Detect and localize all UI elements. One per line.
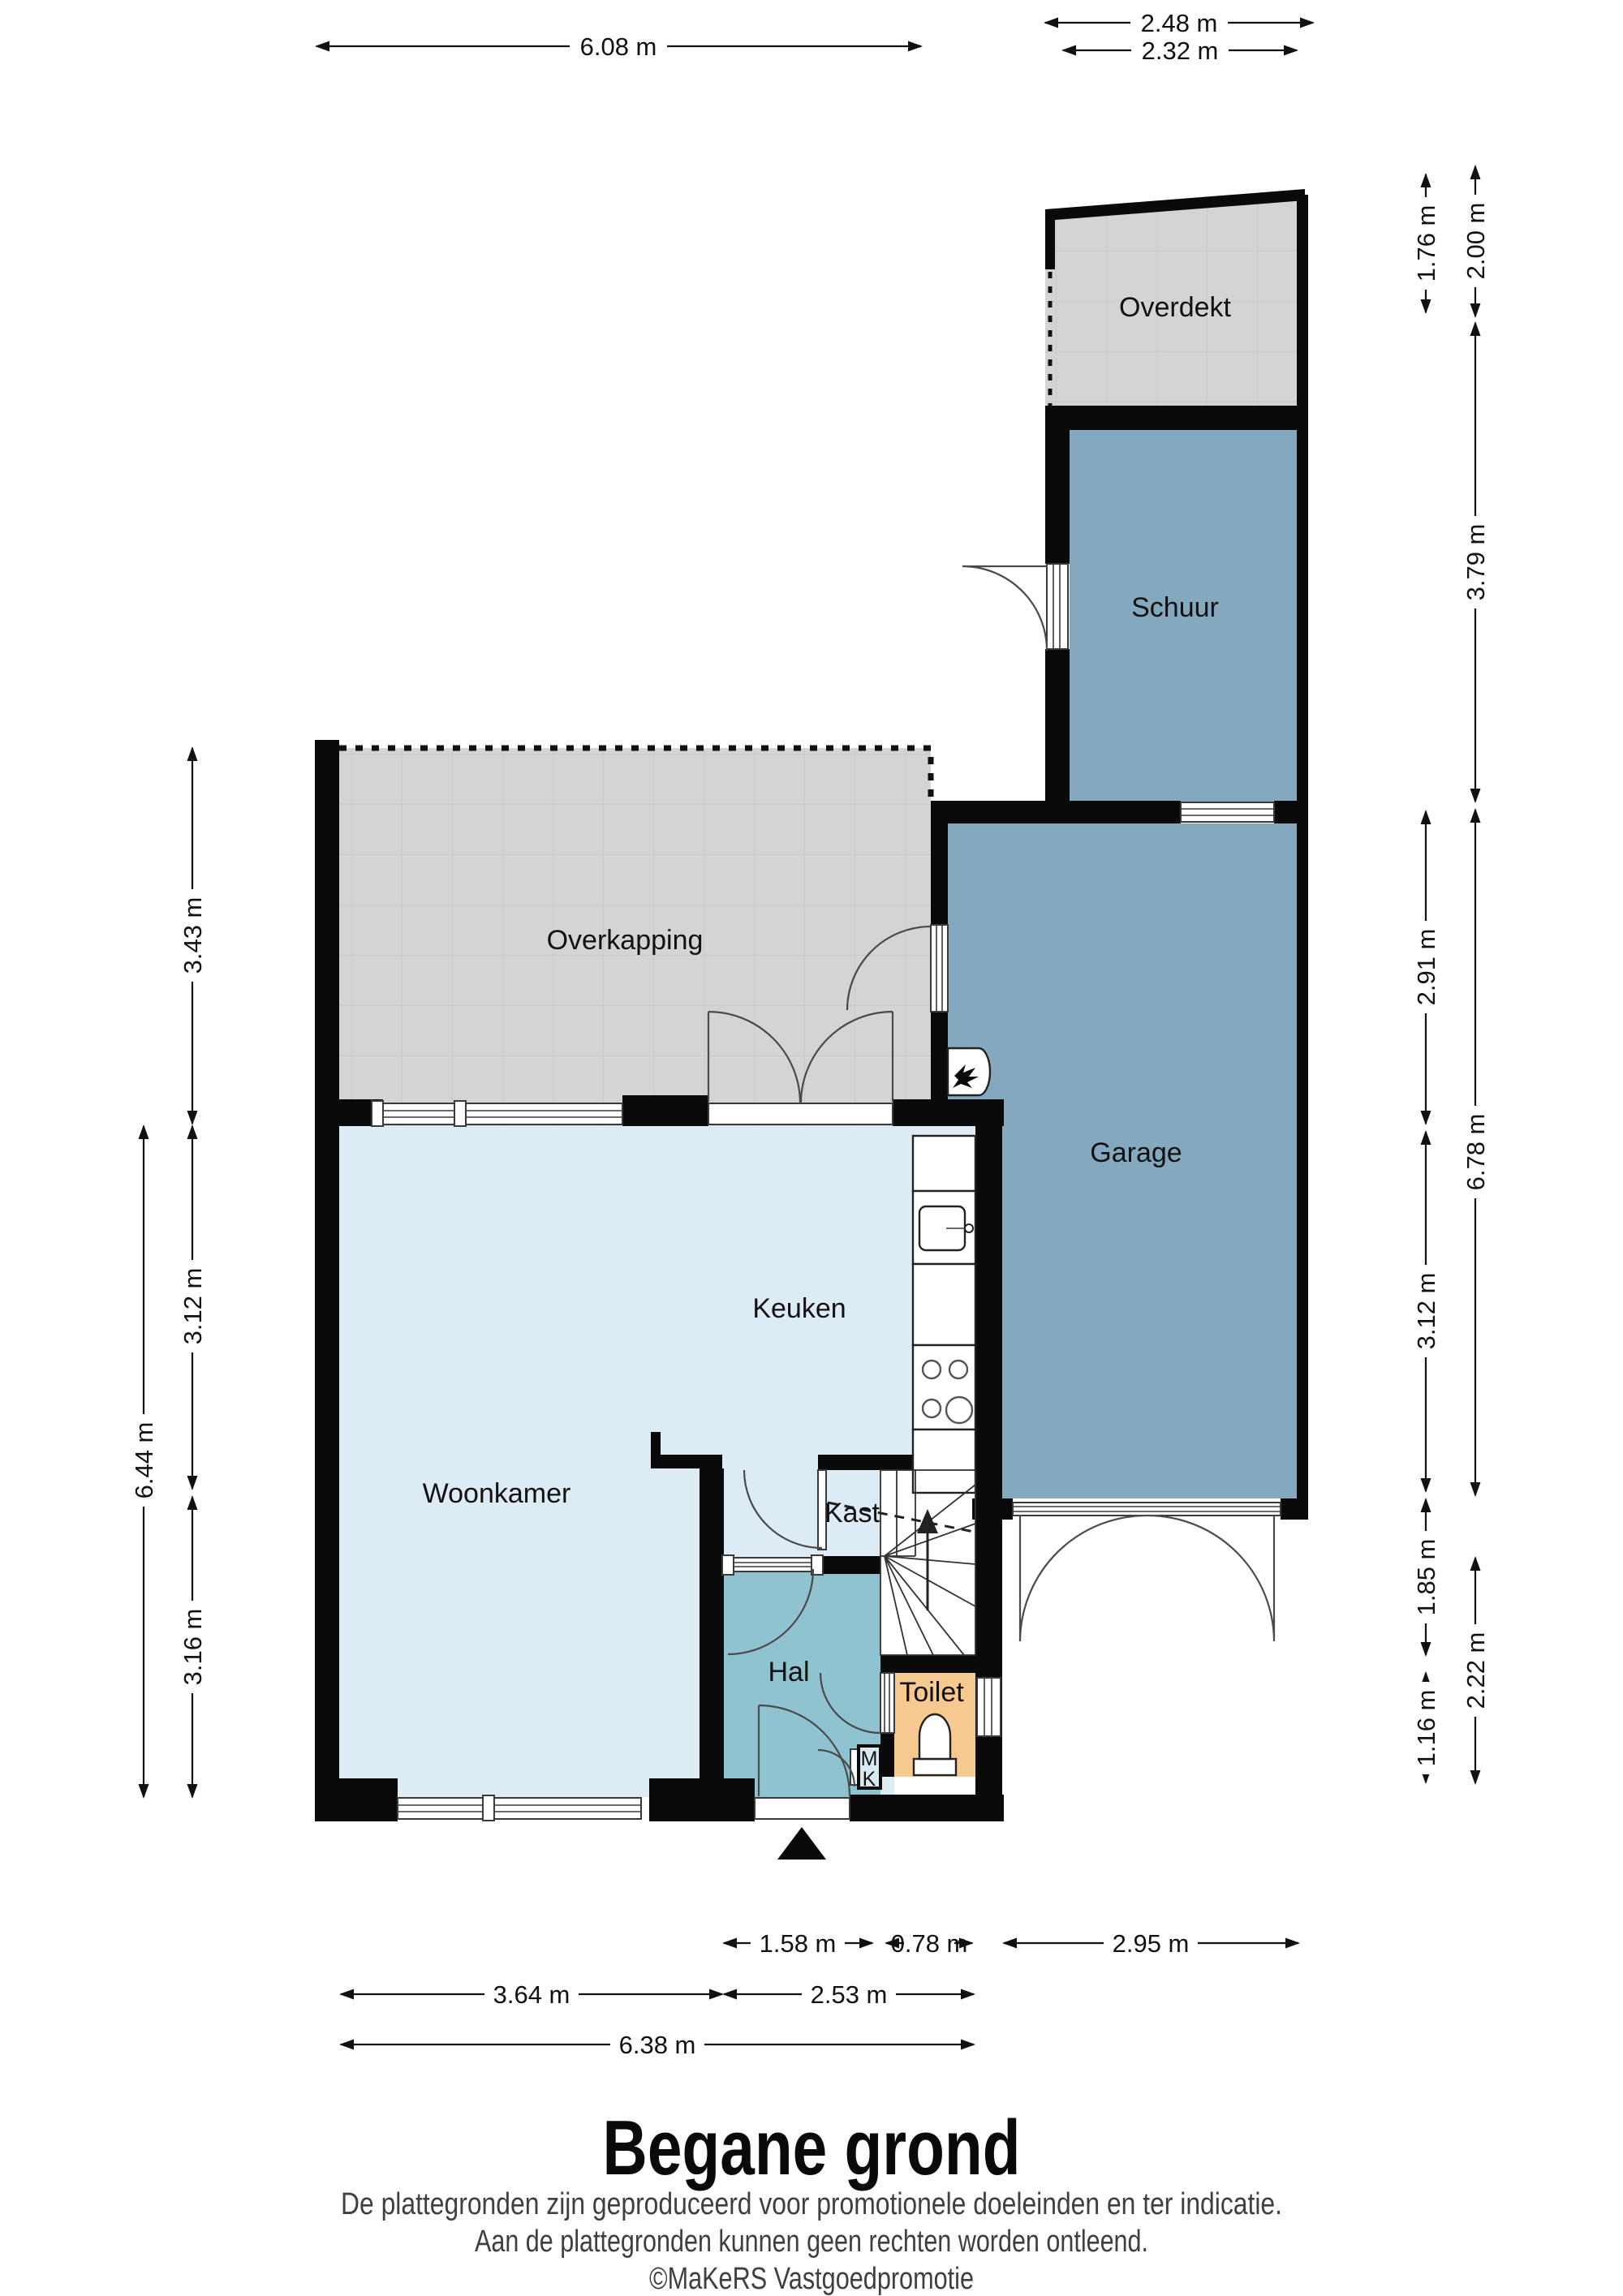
- wall-garage-top-right: [1274, 801, 1308, 823]
- door-jamb: [722, 1555, 734, 1575]
- dim-hal-width: 1.58 m: [724, 1928, 872, 1958]
- svg-text:3.79 m: 3.79 m: [1462, 524, 1490, 601]
- dim-house-width: 6.38 m: [341, 2029, 974, 2060]
- door-french-overkapping: [708, 1103, 893, 1124]
- svg-text:2.48 m: 2.48 m: [1141, 9, 1218, 37]
- copyright-line: ©MaKeRS Vastgoedpromotie: [649, 2262, 974, 2296]
- svg-text:0.78 m: 0.78 m: [891, 1929, 968, 1958]
- water-heater: [948, 1048, 990, 1095]
- dim-overkapping-width: 6.08 m: [316, 31, 921, 62]
- dim-toilet-depth: 1.16 m: [1410, 1673, 1441, 1782]
- label-kast: Kast: [824, 1498, 880, 1529]
- dim-entry-zone: 1.85 m: [1410, 1499, 1441, 1655]
- svg-text:2.95 m: 2.95 m: [1113, 1929, 1190, 1958]
- dim-schuur-depth: 3.79 m: [1460, 323, 1491, 802]
- dim-overdekt-depth: 1.76 m: [1410, 174, 1441, 312]
- meterkast-label-m: M: [861, 1748, 878, 1770]
- overkapping-dotted-edge: [339, 272, 1050, 801]
- svg-text:1.85 m: 1.85 m: [1412, 1539, 1440, 1616]
- wall-kast-bottom: [816, 1556, 880, 1574]
- dim-overdekt-width-outer: 2.48 m: [1045, 7, 1313, 38]
- svg-text:1.76 m: 1.76 m: [1412, 205, 1440, 282]
- wall-woonkamer-hal: [700, 1468, 724, 1797]
- wall-garage-bottom-left: [972, 1498, 1013, 1520]
- wall-top-seg2: [893, 1099, 1004, 1126]
- floorplan-drawing: M K Overdekt Schuur Overkapping Garage K…: [0, 0, 1623, 2296]
- wall-bottom-pier: [649, 1778, 755, 1821]
- svg-text:1.16 m: 1.16 m: [1412, 1690, 1440, 1767]
- door-toilet: [880, 1673, 894, 1733]
- svg-text:3.12 m: 3.12 m: [1412, 1273, 1440, 1350]
- svg-text:6.44 m: 6.44 m: [130, 1422, 158, 1499]
- dim-garage-upper: 2.91 m: [1410, 811, 1441, 1124]
- wall-stairs-bottom: [880, 1655, 975, 1673]
- wall-right-outer: [1297, 195, 1308, 1520]
- wall-garage-top-left: [931, 801, 1181, 823]
- label-woonkamer: Woonkamer: [423, 1478, 571, 1509]
- dim-woonkamer-total: 6.44 m: [128, 1126, 159, 1797]
- door-garage-overkapping: [931, 925, 948, 1012]
- dim-overdekt-width-inner: 2.32 m: [1063, 35, 1297, 66]
- disclaimer-line-1: De plattegronden zijn geproduceerd voor …: [341, 2187, 1282, 2221]
- door-front: [755, 1798, 850, 1819]
- wall-overdekt-left-stub: [1045, 213, 1055, 269]
- label-overkapping: Overkapping: [547, 925, 704, 956]
- wall-toilet-left: [880, 1733, 894, 1777]
- wall-schuur-left-lower: [1045, 649, 1070, 822]
- door-hal: [726, 1558, 816, 1572]
- label-garage: Garage: [1090, 1137, 1182, 1168]
- svg-text:6.38 m: 6.38 m: [619, 2031, 696, 2059]
- dim-garage-width: 2.95 m: [1004, 1928, 1298, 1958]
- wall-bottom-seg2: [850, 1795, 1004, 1821]
- wall-schuur-top: [1045, 406, 1308, 430]
- window-jamb: [372, 1101, 383, 1126]
- dim-overdekt-total: 2.00 m: [1460, 166, 1491, 316]
- wall-left: [315, 740, 339, 1821]
- dim-rear-zone: 2.22 m: [1460, 1558, 1491, 1783]
- svg-text:2.53 m: 2.53 m: [811, 1980, 888, 2009]
- wall-overkapping-garage-upper: [931, 801, 948, 925]
- svg-text:6.08 m: 6.08 m: [580, 32, 657, 61]
- stove-unit: [913, 1345, 975, 1430]
- wall-top-pier: [622, 1095, 708, 1126]
- label-schuur: Schuur: [1131, 592, 1219, 623]
- window-schuur-garage: [1181, 802, 1274, 822]
- svg-text:3.43 m: 3.43 m: [179, 897, 207, 974]
- dim-garage-lower: 3.12 m: [1410, 1132, 1441, 1491]
- label-keuken: Keuken: [752, 1293, 846, 1324]
- window-woonkamer: [398, 1798, 641, 1819]
- svg-text:2.22 m: 2.22 m: [1462, 1632, 1490, 1709]
- disclaimer-line-2: Aan de plattegronden kunnen geen rechten…: [475, 2225, 1148, 2259]
- faucet-icon: [965, 1224, 973, 1232]
- wall-schuur-left-upper: [1045, 406, 1070, 564]
- svg-text:1.58 m: 1.58 m: [760, 1929, 837, 1958]
- svg-text:3.16 m: 3.16 m: [179, 1609, 207, 1686]
- svg-text:3.64 m: 3.64 m: [493, 1980, 570, 2009]
- kitchen-counter: [913, 1136, 975, 1493]
- title-block: Begane grond De plattegronden zijn gepro…: [341, 2105, 1282, 2296]
- wall-jog-horizontal: [651, 1455, 722, 1468]
- dim-overkapping-depth: 3.43 m: [177, 748, 208, 1124]
- page-title: Begane grond: [603, 2105, 1021, 2191]
- dim-stair-width: 0.78 m: [886, 1929, 972, 1958]
- dim-woonkamer-width: 3.64 m: [341, 1979, 722, 2010]
- window-overkapping: [383, 1103, 622, 1124]
- svg-text:6.78 m: 6.78 m: [1462, 1114, 1490, 1191]
- wall-bottom-seg1: [315, 1778, 398, 1821]
- entrance-marker-icon: [777, 1827, 826, 1860]
- dim-woonkamer-upper: 3.12 m: [177, 1126, 208, 1489]
- svg-text:2.00 m: 2.00 m: [1462, 203, 1490, 280]
- window-mullion: [454, 1101, 466, 1126]
- label-toilet: Toilet: [899, 1677, 964, 1708]
- toilet-rear-strip: [894, 1777, 975, 1795]
- label-overdekt: Overdekt: [1119, 292, 1231, 323]
- svg-text:2.91 m: 2.91 m: [1412, 929, 1440, 1006]
- dim-garage-total: 6.78 m: [1460, 810, 1491, 1495]
- dim-hal-zone-width: 2.53 m: [724, 1979, 974, 2010]
- meterkast-label-k: K: [863, 1768, 876, 1791]
- meterkast: M K: [859, 1746, 880, 1791]
- floorplan-page: M K Overdekt Schuur Overkapping Garage K…: [0, 0, 1623, 2296]
- svg-text:3.12 m: 3.12 m: [179, 1268, 207, 1345]
- wall-jog-stub: [651, 1432, 661, 1456]
- window-toilet: [977, 1678, 1001, 1736]
- label-hal: Hal: [768, 1657, 809, 1688]
- door-schuur: [1047, 564, 1068, 649]
- wall-garage-bottom-right: [1281, 1498, 1308, 1520]
- svg-text:2.32 m: 2.32 m: [1142, 37, 1219, 65]
- dim-woonkamer-lower: 3.16 m: [177, 1497, 208, 1797]
- door-garage-double: [1013, 1503, 1281, 1516]
- window-mullion: [483, 1795, 494, 1821]
